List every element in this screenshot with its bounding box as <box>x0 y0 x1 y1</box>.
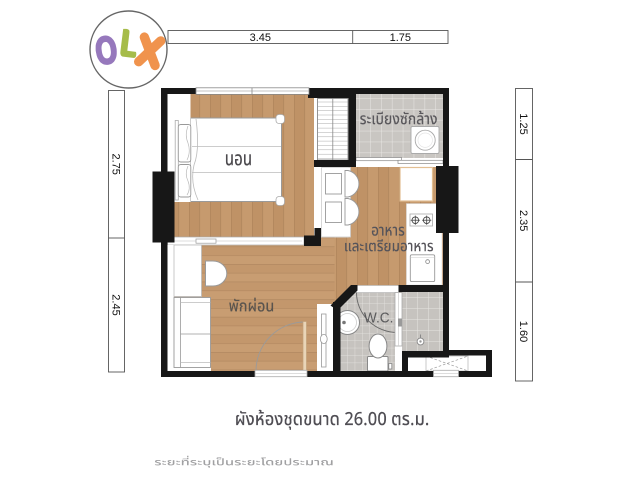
svg-text:1.75: 1.75 <box>390 32 411 44</box>
svg-text:2.35: 2.35 <box>517 210 529 231</box>
svg-text:1.60: 1.60 <box>517 321 529 342</box>
svg-text:2.75: 2.75 <box>110 153 122 174</box>
svg-text:2.45: 2.45 <box>110 294 122 315</box>
svg-text:W.C.: W.C. <box>364 310 394 327</box>
svg-text:3.45: 3.45 <box>250 32 271 44</box>
svg-text:1.25: 1.25 <box>517 113 529 134</box>
